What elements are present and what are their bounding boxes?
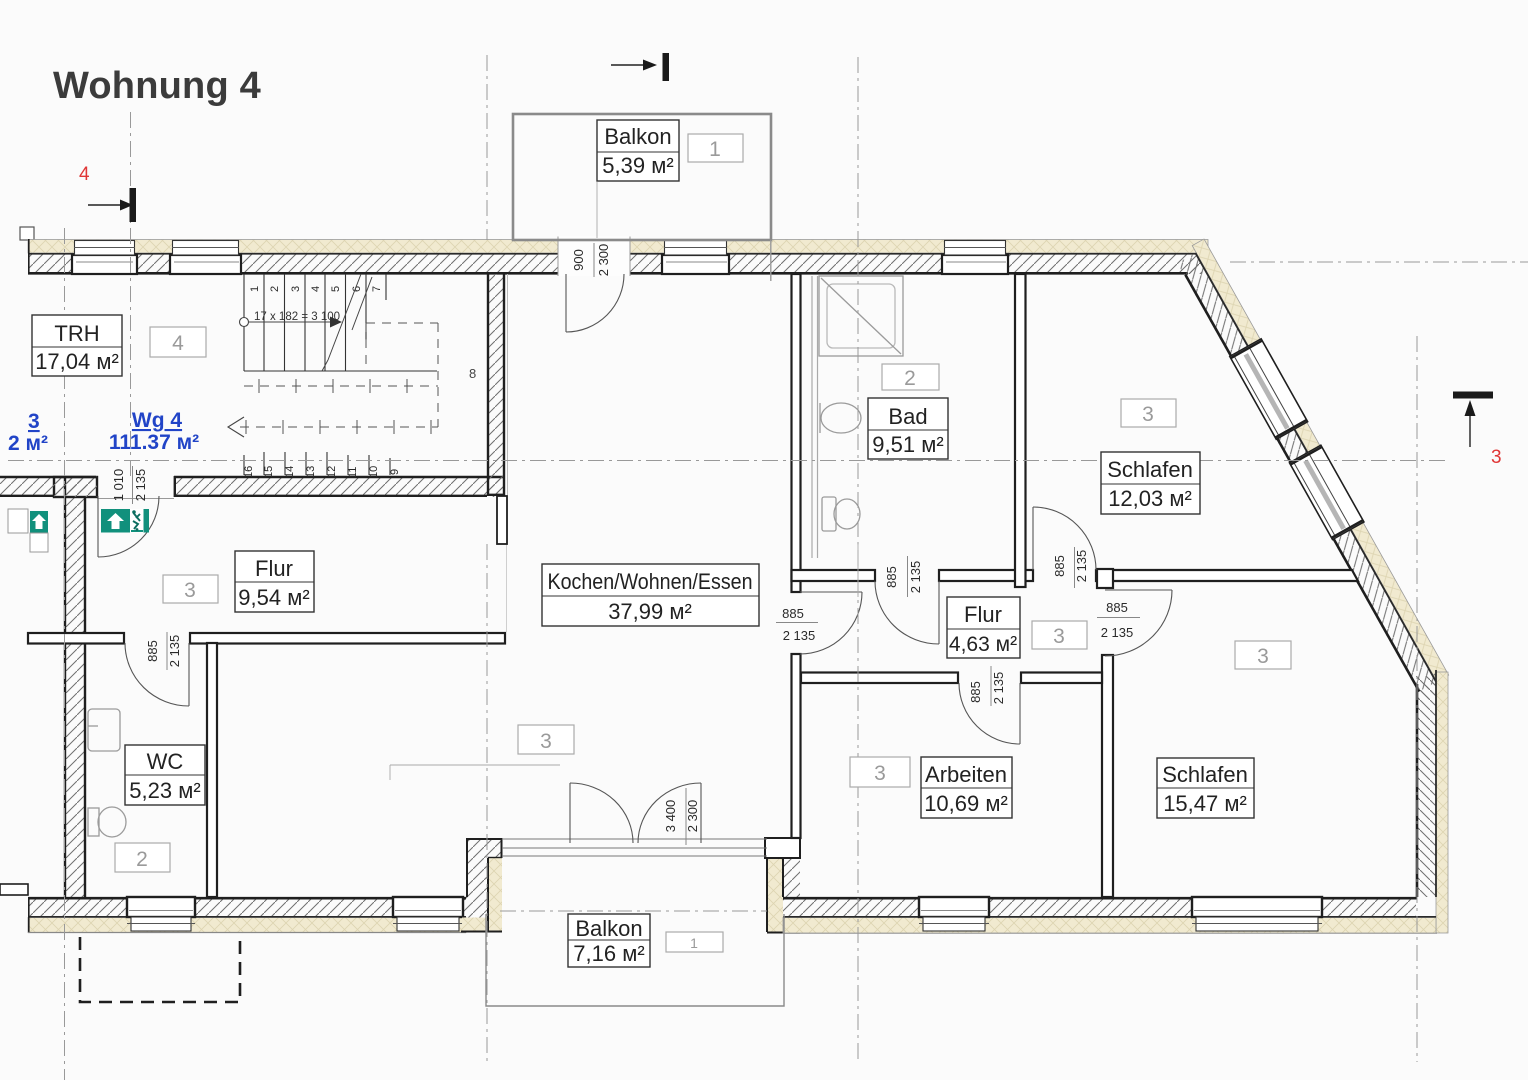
svg-text:Wohnung 4: Wohnung 4 — [53, 65, 261, 107]
svg-text:9,54 м²: 9,54 м² — [238, 585, 309, 610]
svg-text:885: 885 — [884, 566, 899, 588]
svg-text:37,99 м²: 37,99 м² — [608, 599, 692, 624]
svg-text:10,69 м²: 10,69 м² — [924, 791, 1008, 816]
svg-text:3: 3 — [290, 286, 302, 292]
svg-text:14: 14 — [284, 466, 296, 478]
svg-text:2: 2 — [904, 367, 916, 390]
svg-text:7,16 м²: 7,16 м² — [573, 941, 644, 966]
svg-text:900: 900 — [571, 249, 586, 271]
svg-text:3: 3 — [1053, 625, 1065, 648]
svg-text:Wg 4: Wg 4 — [132, 409, 182, 432]
svg-text:111.37 м²: 111.37 м² — [109, 431, 199, 454]
svg-text:WC: WC — [147, 749, 184, 774]
svg-text:Balkon: Balkon — [575, 916, 642, 941]
svg-text:1 010: 1 010 — [111, 469, 126, 502]
svg-text:Balkon: Balkon — [604, 124, 671, 149]
svg-text:4,63 м²: 4,63 м² — [949, 633, 1017, 656]
svg-text:15: 15 — [263, 466, 275, 478]
svg-text:Schlafen: Schlafen — [1162, 762, 1248, 787]
svg-text:Arbeiten: Arbeiten — [925, 762, 1007, 787]
svg-text:TRH: TRH — [54, 321, 99, 346]
svg-text:3: 3 — [1142, 403, 1154, 426]
svg-text:8: 8 — [469, 366, 476, 381]
svg-text:12,03 м²: 12,03 м² — [1108, 486, 1192, 511]
svg-text:2 300: 2 300 — [596, 244, 611, 277]
svg-text:2 135: 2 135 — [783, 628, 816, 643]
svg-text:885: 885 — [145, 640, 160, 662]
svg-text:Kochen/Wohnen/Essen: Kochen/Wohnen/Essen — [548, 569, 753, 594]
svg-text:2 135: 2 135 — [133, 469, 148, 502]
svg-text:4: 4 — [172, 332, 184, 355]
svg-text:2 м²: 2 м² — [8, 432, 48, 455]
svg-text:4: 4 — [79, 164, 90, 185]
svg-text:6: 6 — [351, 286, 363, 292]
svg-text:3: 3 — [540, 730, 552, 753]
svg-text:Bad: Bad — [888, 404, 927, 429]
svg-text:5,23 м²: 5,23 м² — [129, 778, 200, 803]
svg-text:13: 13 — [305, 466, 317, 478]
svg-text:2 135: 2 135 — [991, 672, 1006, 705]
svg-text:9: 9 — [389, 469, 401, 475]
svg-text:2 135: 2 135 — [1101, 625, 1134, 640]
svg-text:12: 12 — [326, 466, 338, 478]
svg-text:10: 10 — [368, 466, 380, 478]
svg-text:17,04 м²: 17,04 м² — [35, 349, 119, 374]
svg-text:11: 11 — [347, 467, 359, 478]
svg-text:4: 4 — [310, 286, 322, 292]
svg-text:7: 7 — [371, 286, 383, 292]
svg-text:9,51 м²: 9,51 м² — [872, 432, 943, 457]
svg-text:2 300: 2 300 — [685, 800, 700, 833]
svg-text:1: 1 — [709, 138, 721, 161]
svg-text:2: 2 — [269, 286, 281, 292]
svg-text:885: 885 — [782, 606, 804, 621]
svg-text:2 135: 2 135 — [167, 635, 182, 668]
svg-text:15,47 м²: 15,47 м² — [1163, 791, 1247, 816]
svg-text:2 135: 2 135 — [908, 561, 923, 594]
svg-text:1: 1 — [249, 286, 261, 292]
svg-text:3: 3 — [874, 762, 886, 785]
svg-text:3 400: 3 400 — [663, 800, 678, 833]
svg-text:5: 5 — [330, 286, 342, 292]
svg-text:3: 3 — [28, 410, 40, 433]
svg-text:3: 3 — [184, 579, 196, 602]
svg-text:2 135: 2 135 — [1074, 550, 1089, 583]
svg-text:5,39 м²: 5,39 м² — [602, 153, 673, 178]
svg-text:Flur: Flur — [255, 556, 293, 581]
svg-text:885: 885 — [1106, 600, 1128, 615]
svg-text:Flur: Flur — [964, 602, 1002, 627]
svg-text:1: 1 — [690, 935, 698, 951]
svg-text:16: 16 — [243, 466, 255, 478]
svg-text:3: 3 — [1491, 447, 1502, 468]
svg-text:2: 2 — [136, 848, 148, 871]
svg-text:885: 885 — [1052, 555, 1067, 577]
svg-text:3: 3 — [1257, 645, 1269, 668]
svg-text:885: 885 — [968, 681, 983, 703]
svg-text:Schlafen: Schlafen — [1107, 457, 1193, 482]
svg-text:17 x 182 = 3 100: 17 x 182 = 3 100 — [254, 311, 340, 323]
